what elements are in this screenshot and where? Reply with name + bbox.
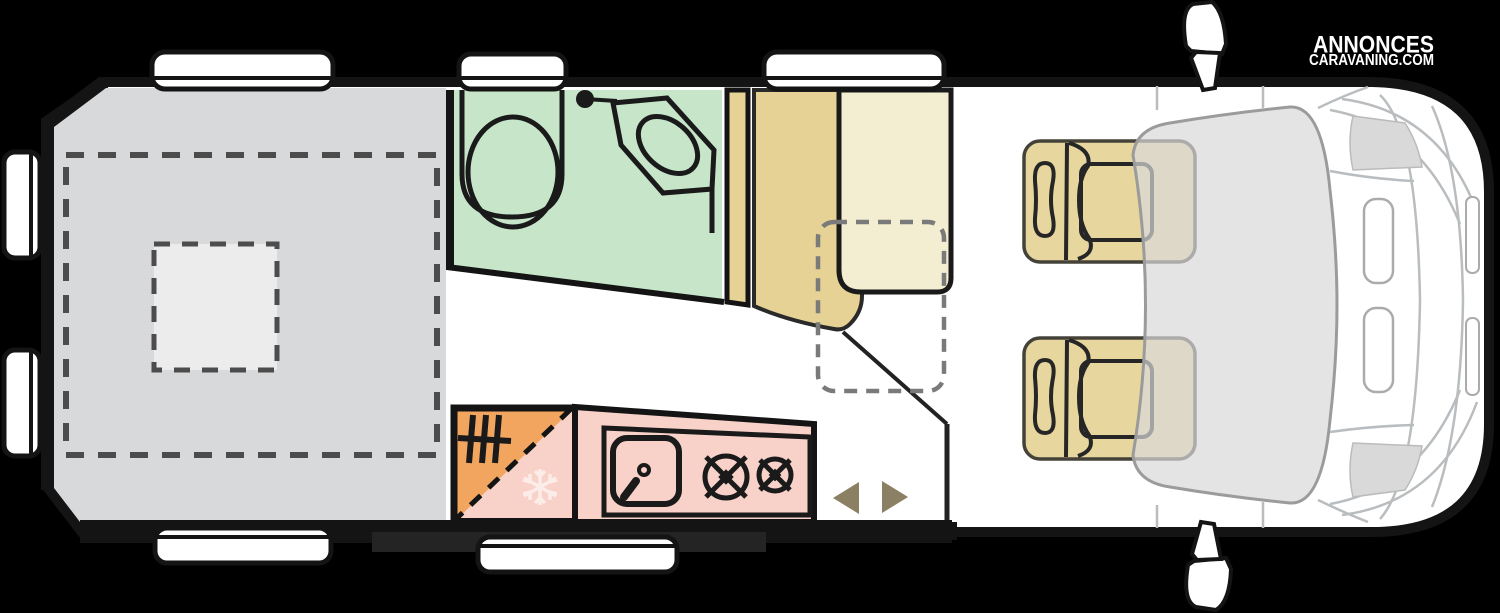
svg-text:CARAVANING.COM: CARAVANING.COM bbox=[1309, 52, 1434, 69]
